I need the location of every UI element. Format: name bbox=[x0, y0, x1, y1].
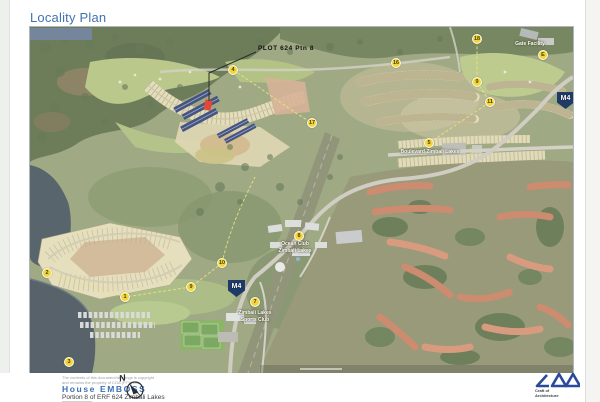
label-boulevard: Boulevard Zimbali Lakes bbox=[385, 149, 475, 156]
north-arrow-icon bbox=[125, 380, 145, 400]
imagery-attribution-strip bbox=[260, 365, 573, 373]
map-marker: 3 bbox=[64, 357, 74, 367]
label-sports-club: Zimbali Lakes Sports Club bbox=[225, 310, 285, 323]
label-gate-facility: Gate Facility bbox=[500, 41, 560, 48]
map-marker: 2 bbox=[42, 268, 52, 278]
sheet-number-microtext: · · bbox=[566, 396, 569, 400]
label-ocean-club: Ocean Club Zimbali Lakes bbox=[265, 241, 325, 254]
map-marker: E bbox=[538, 50, 548, 60]
map-corner-swatch bbox=[30, 28, 92, 40]
map-marker: 16 bbox=[391, 58, 401, 68]
page-left-margin bbox=[0, 0, 10, 402]
logo-tagline: Craft of Architecture bbox=[535, 388, 559, 398]
aerial-map-art bbox=[30, 27, 573, 373]
locality-plan-sheet: Locality Plan bbox=[0, 0, 600, 402]
page-right-margin bbox=[585, 0, 600, 402]
map-marker: 5 bbox=[424, 138, 434, 148]
map-marker: 1 bbox=[120, 292, 130, 302]
page-title: Locality Plan bbox=[30, 10, 106, 25]
map-marker: 11 bbox=[485, 97, 495, 107]
map-marker: 9 bbox=[472, 77, 482, 87]
title-block: The contents of this document/drawings i… bbox=[0, 373, 600, 402]
map-marker: 10 bbox=[217, 258, 227, 268]
locality-map: PLOT 624 Ptn 8 Gate Facility Boulevard Z… bbox=[30, 27, 573, 373]
map-marker: 17 bbox=[307, 118, 317, 128]
map-marker: 8 bbox=[294, 231, 304, 241]
map-marker: 9 bbox=[186, 282, 196, 292]
laa-logo-icon bbox=[534, 367, 580, 389]
plot-callout-label: PLOT 624 Ptn 8 bbox=[258, 45, 314, 52]
map-marker: 7 bbox=[250, 297, 260, 307]
map-marker: 4 bbox=[228, 65, 238, 75]
map-marker: 18 bbox=[472, 34, 482, 44]
